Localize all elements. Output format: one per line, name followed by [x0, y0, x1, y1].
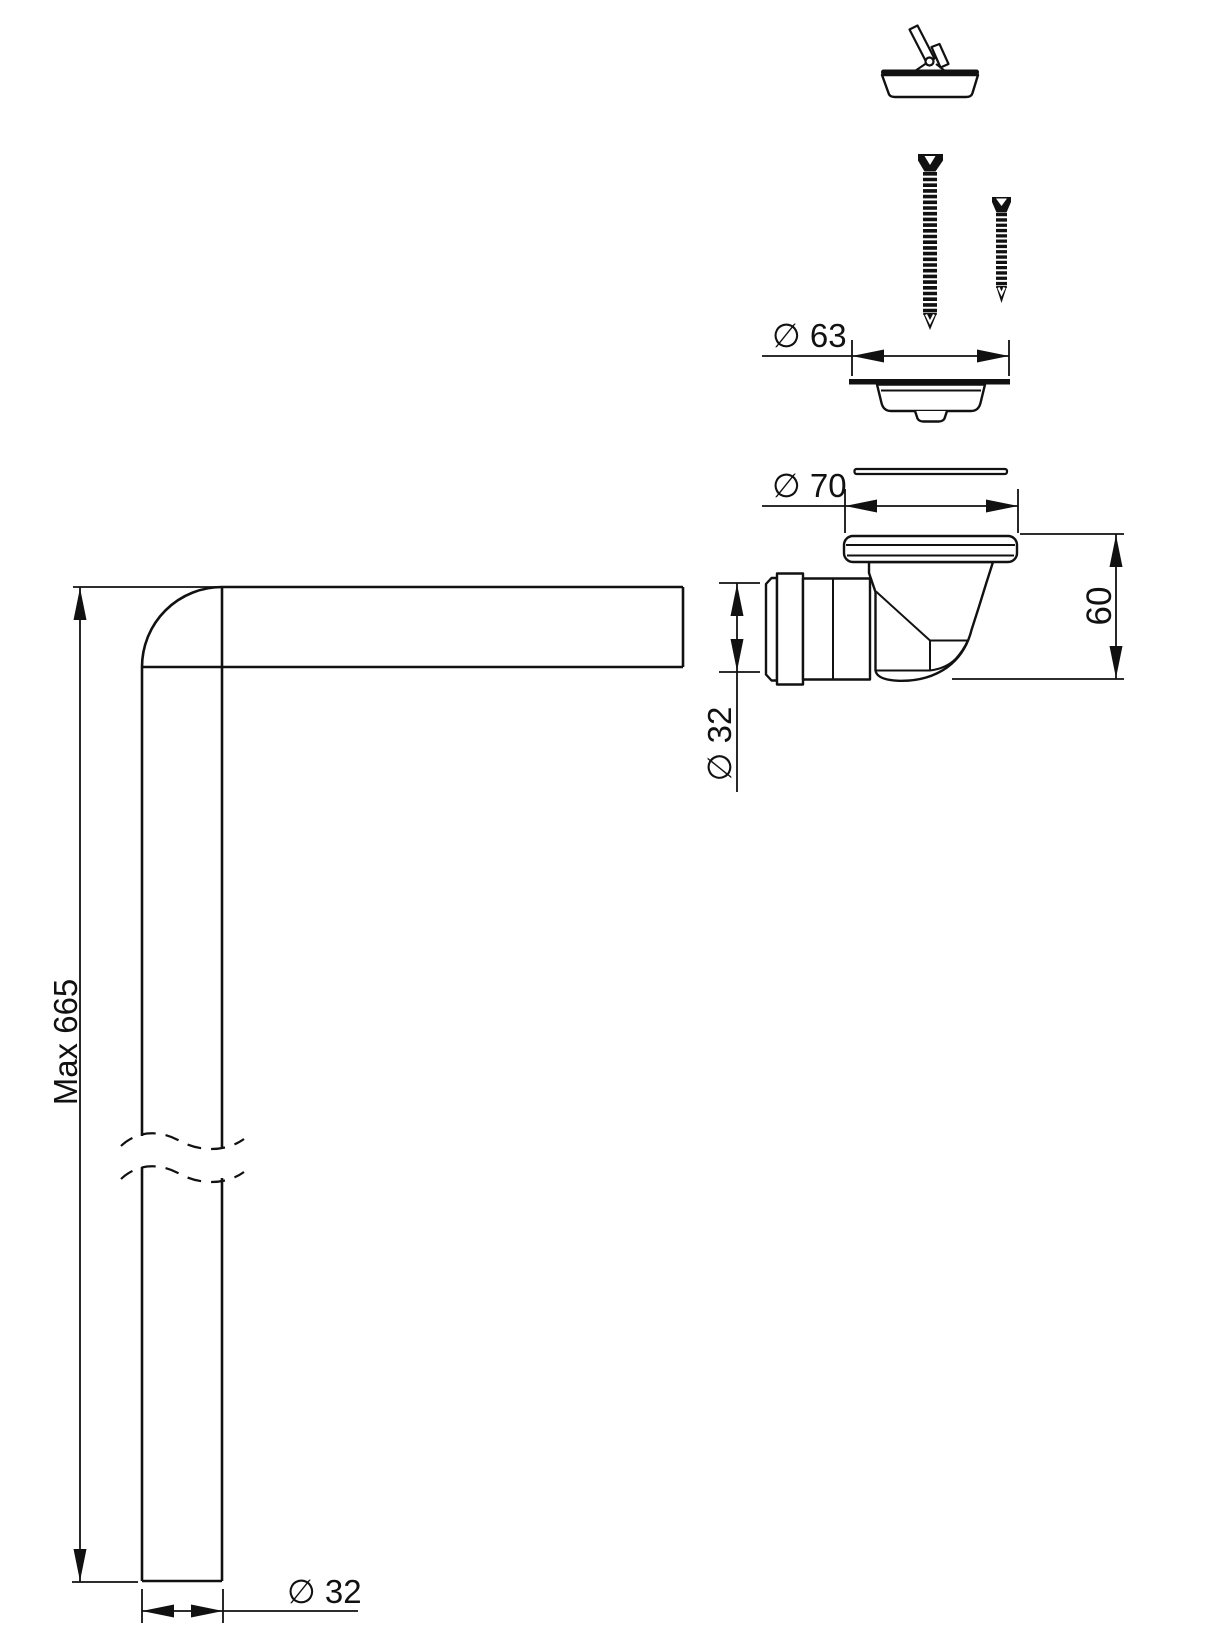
arrowhead [1110, 535, 1123, 567]
dim-pipe-max-length: Max 665 [47, 587, 222, 1582]
gasket [855, 469, 1008, 474]
arrowhead [845, 500, 877, 513]
arrowhead [986, 500, 1018, 513]
arrowhead [1110, 646, 1123, 678]
drawing-canvas: ∅ 63 ∅ 70 [0, 0, 1214, 1647]
waste-fitting [766, 536, 1017, 685]
flange-outline [844, 536, 1017, 562]
arrowhead [74, 588, 87, 620]
inlet-socket [803, 579, 870, 680]
arrowhead [852, 350, 884, 363]
fitting-flange [844, 536, 1017, 562]
dim-label-inlet-diameter: ∅ 32 [701, 707, 738, 782]
dim-inlet-diameter: ∅ 32 [701, 583, 760, 792]
plug [881, 26, 979, 98]
dim-label-fitting-diameter: ∅ 70 [772, 467, 847, 504]
dim-label-pipe-diameter: ∅ 32 [287, 1573, 362, 1610]
short-screw [992, 197, 1011, 303]
long-screw [918, 154, 943, 330]
flange-boss [915, 411, 947, 422]
plug-lever-pivot [926, 58, 934, 66]
nut-ring-inner [777, 574, 803, 685]
arrowhead [142, 1605, 174, 1618]
arrowhead [731, 639, 744, 671]
nut-ring-outer [766, 578, 777, 681]
bend-outer-curve [142, 587, 222, 667]
arrowhead [731, 584, 744, 616]
gasket-ring [855, 469, 1008, 474]
dim-label-strainer-diameter: ∅ 63 [772, 317, 847, 354]
dim-strainer-diameter: ∅ 63 [762, 317, 1009, 376]
pipe-break-mark-lower [121, 1166, 244, 1182]
pipe-break-mark-upper [121, 1133, 244, 1149]
strainer-flange [849, 379, 1010, 422]
compression-nut [766, 574, 870, 685]
fitting-body [869, 562, 993, 681]
arrowhead [191, 1605, 223, 1618]
dim-label-fitting-height: 60 [1080, 587, 1119, 626]
plug-body [882, 75, 978, 97]
arrowhead [977, 350, 1009, 363]
arrowhead [74, 1549, 87, 1581]
technical-drawing: ∅ 63 ∅ 70 [0, 0, 1214, 1647]
dim-fitting-diameter: ∅ 70 [762, 467, 1018, 533]
dim-label-pipe-max-length: Max 665 [47, 979, 84, 1106]
standpipe [121, 587, 244, 1581]
flange-body [877, 385, 985, 412]
